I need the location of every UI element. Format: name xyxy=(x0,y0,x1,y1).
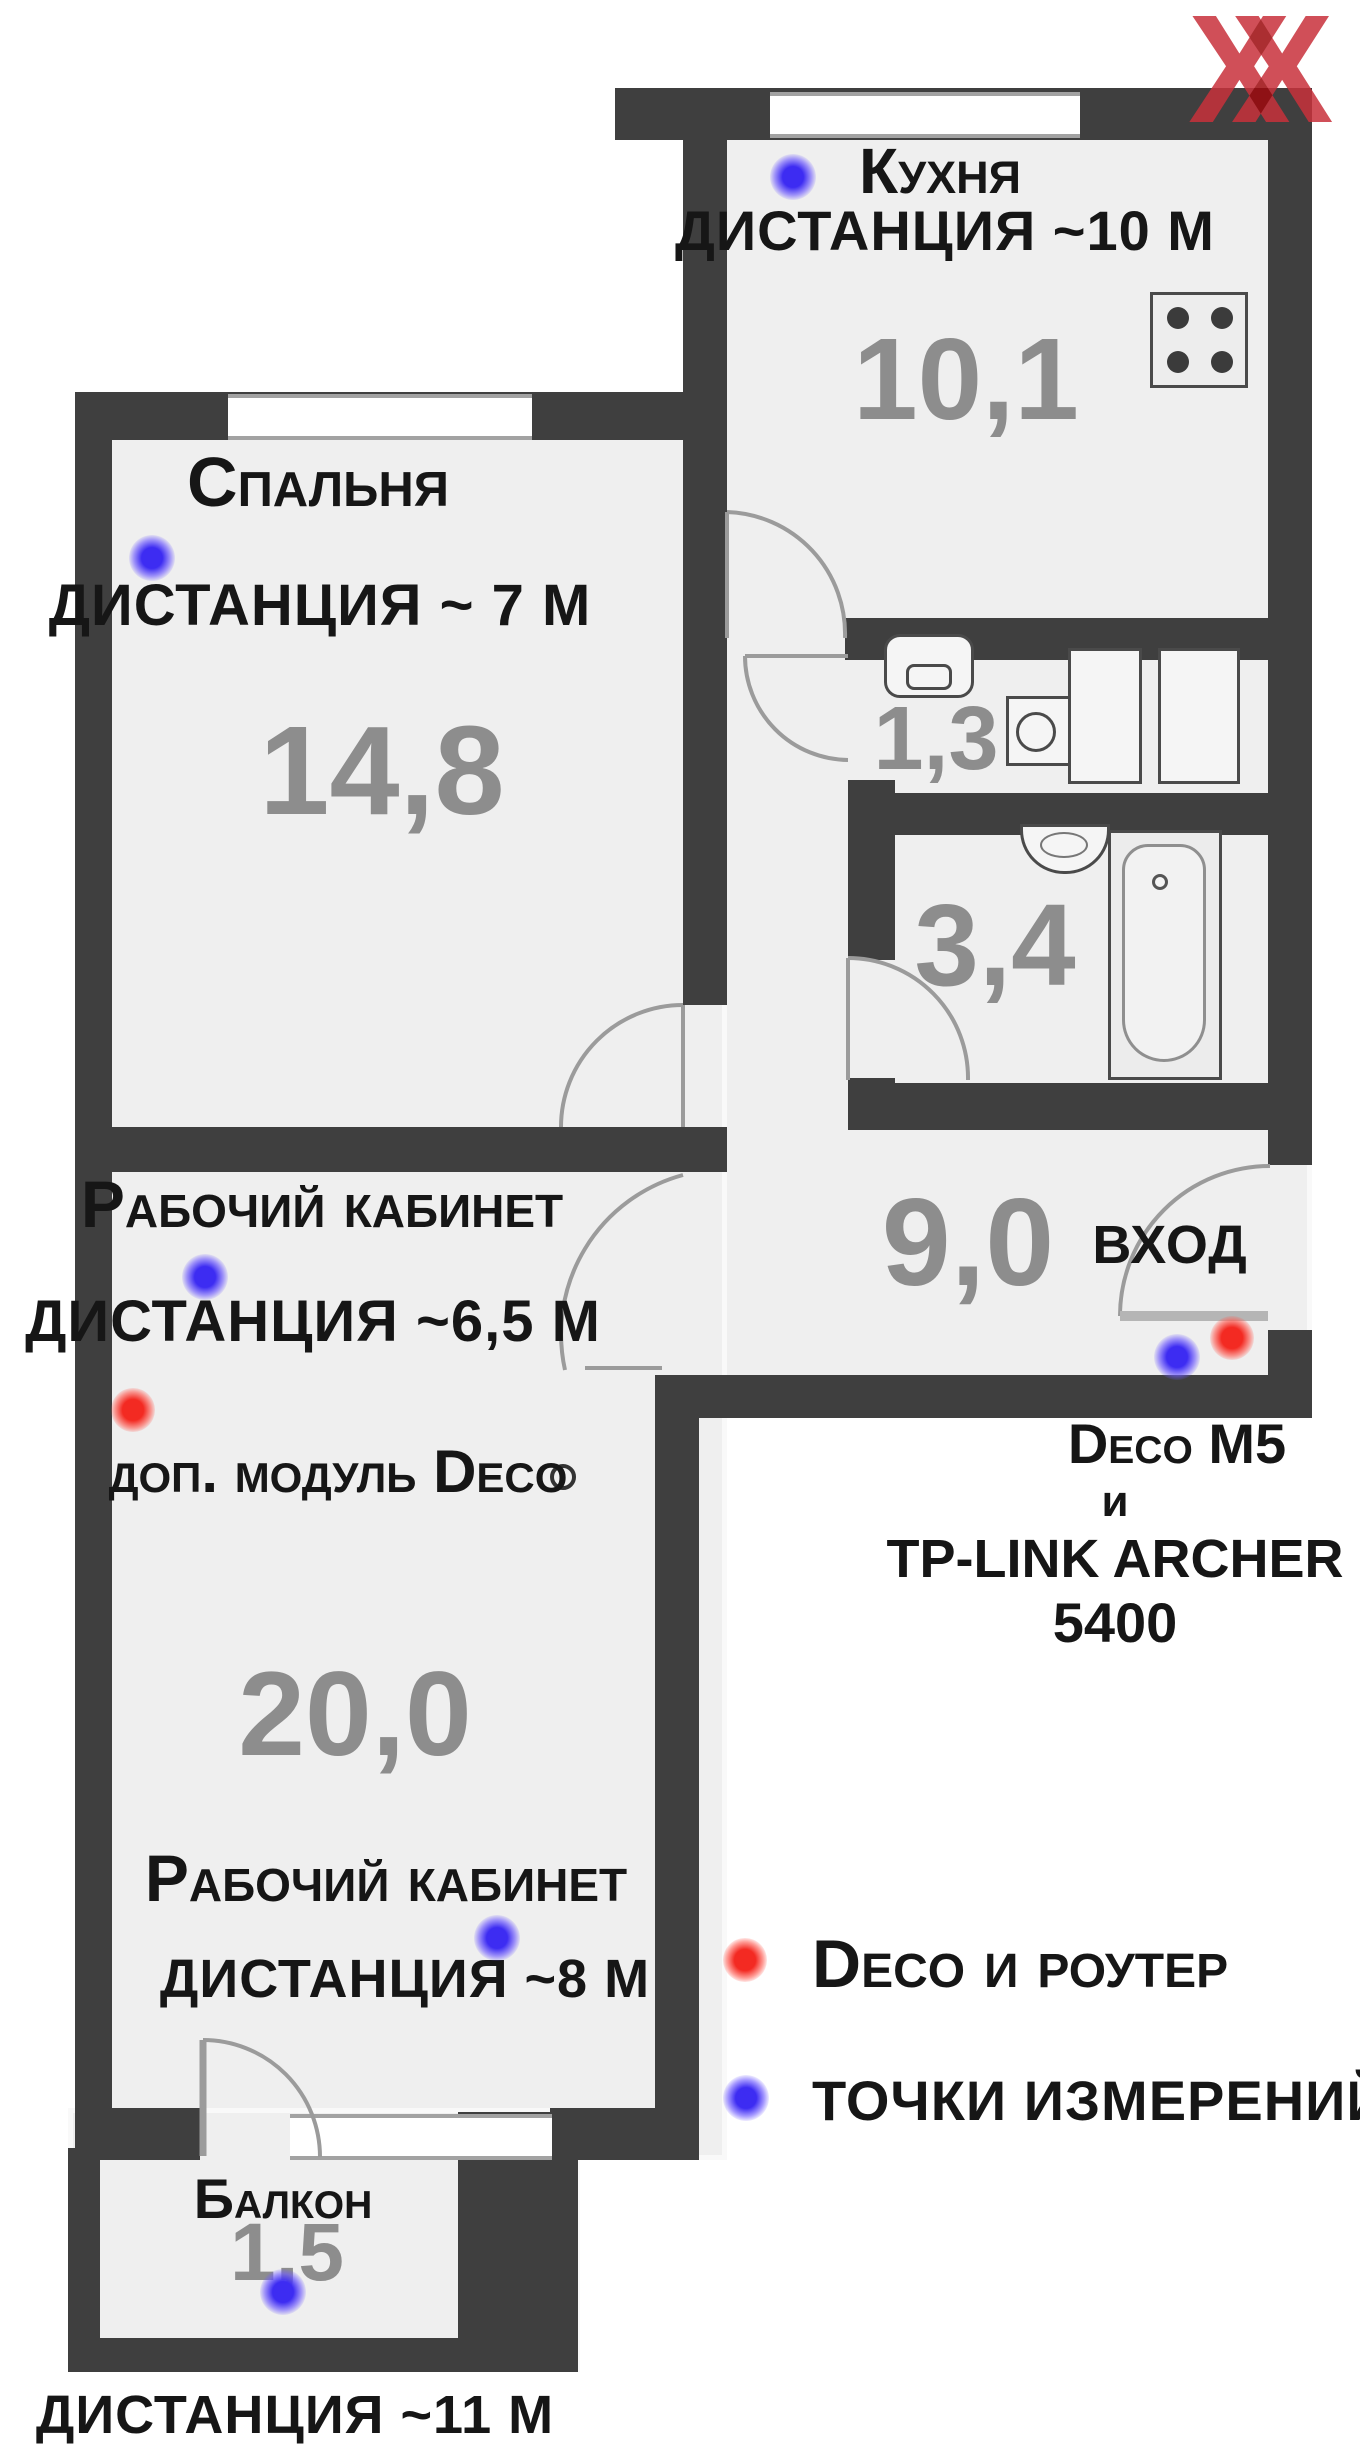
router-dot-office xyxy=(111,1388,155,1432)
router-dot-entrance xyxy=(1210,1316,1254,1360)
balcony-door-arc xyxy=(203,2040,320,2157)
bedroom-door-arc xyxy=(561,1005,683,1127)
router-note-line3: TP-LINK ARCHER xyxy=(880,1528,1350,1590)
legend-router-dot xyxy=(723,1938,767,1982)
measure-dot-bedroom xyxy=(129,535,175,581)
wc-sink-bowl-icon xyxy=(1016,712,1056,752)
entrance-label: вход xyxy=(1092,1214,1247,1276)
kitchen-door-arc xyxy=(727,512,845,638)
stove-burner-icon xyxy=(1167,351,1189,373)
kitchen-distance: дистанция ~10 м xyxy=(675,198,1215,263)
cabinet-icon xyxy=(1068,648,1142,784)
office-title-lower: Рабочий кабинет xyxy=(145,1840,627,1916)
bedroom-label: Спальня xyxy=(187,442,449,522)
kitchen-label: Кухня xyxy=(859,134,1021,208)
stove-burner-icon xyxy=(1211,351,1233,373)
balcony-label: Балкон xyxy=(194,2166,373,2231)
washer-icon xyxy=(1158,648,1240,784)
router-note-line1: Deco M5 xyxy=(942,1412,1360,1476)
kitchen-area: 10,1 xyxy=(853,312,1079,446)
measure-dot-balcony xyxy=(260,2269,306,2315)
office-distance-upper: дистанция ~6,5 м xyxy=(25,1288,601,1355)
legend-points-dot xyxy=(723,2075,769,2121)
bathtub-drain-icon xyxy=(1152,874,1168,890)
router-note-line2: и xyxy=(880,1476,1350,1528)
stove-burner-icon xyxy=(1167,307,1189,329)
router-note: Deco M5 и TP-LINK ARCHER 5400 xyxy=(880,1412,1350,1656)
measure-dot-office-upper xyxy=(182,1254,228,1300)
watermark-x2: X xyxy=(1231,0,1334,146)
measure-dot-entrance xyxy=(1154,1334,1200,1380)
toilet-bowl-icon xyxy=(906,664,952,690)
bedroom-area: 14,8 xyxy=(259,698,504,843)
measure-dot-office-lower xyxy=(474,1915,520,1961)
wc-area: 1,3 xyxy=(873,688,998,791)
floor-plan: Кухня дистанция ~10 м 10,1 Спальня диста… xyxy=(0,0,1360,2464)
bath-area: 3,4 xyxy=(914,878,1075,1012)
measure-dot-kitchen xyxy=(770,154,816,200)
balcony-distance: дистанция ~11 м xyxy=(36,2384,554,2446)
wc-door-arc xyxy=(745,656,848,760)
legend-points-label: точки измерений xyxy=(812,2068,1360,2133)
office-distance-lower: дистанция ~8 м xyxy=(160,1948,650,2010)
office-area: 20,0 xyxy=(238,1645,472,1783)
router-note-line4: 5400 xyxy=(880,1590,1350,1656)
stove-icon xyxy=(1150,292,1248,388)
legend-router-label: Deco и роутер xyxy=(812,1925,1228,2003)
stove-burner-icon xyxy=(1211,307,1233,329)
bedroom-distance: дистанция ~ 7 м xyxy=(49,572,592,639)
bath-sink-bowl-icon xyxy=(1040,832,1088,858)
hall-area: 9,0 xyxy=(882,1172,1054,1314)
office-title-upper: Рабочий кабинет xyxy=(81,1166,563,1242)
office-deco-note: доп. модуль Deco xyxy=(109,1437,568,1506)
watermark-logo: X X xyxy=(1188,0,1333,146)
